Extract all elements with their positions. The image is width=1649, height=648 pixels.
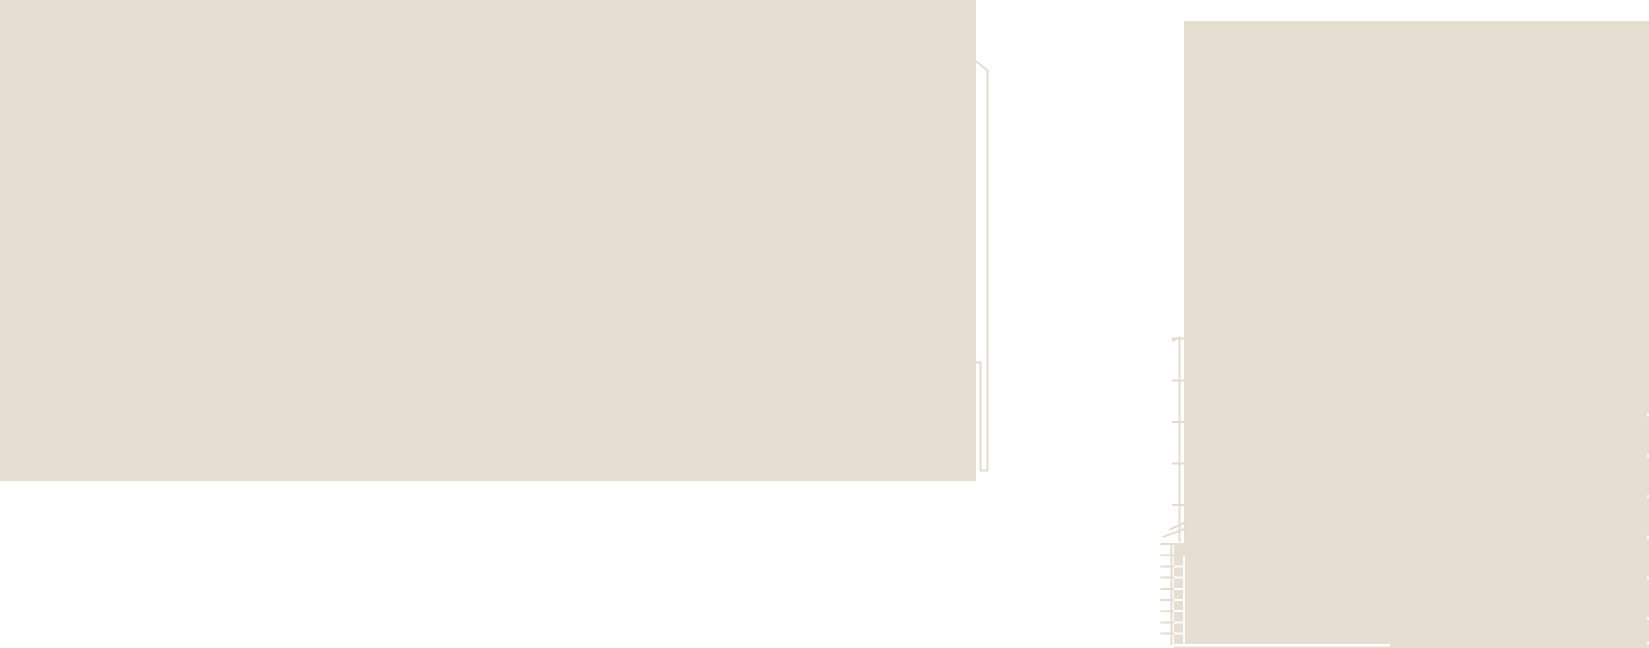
stair-diagonal-1 [1163, 528, 1187, 537]
annex-outline [976, 61, 988, 471]
map-canvas[interactable] [0, 0, 1649, 648]
map-svg [0, 0, 1649, 648]
passage-line [1172, 338, 1180, 543]
right-building-footprint [1174, 21, 1649, 648]
left-building-footprint [0, 0, 976, 481]
